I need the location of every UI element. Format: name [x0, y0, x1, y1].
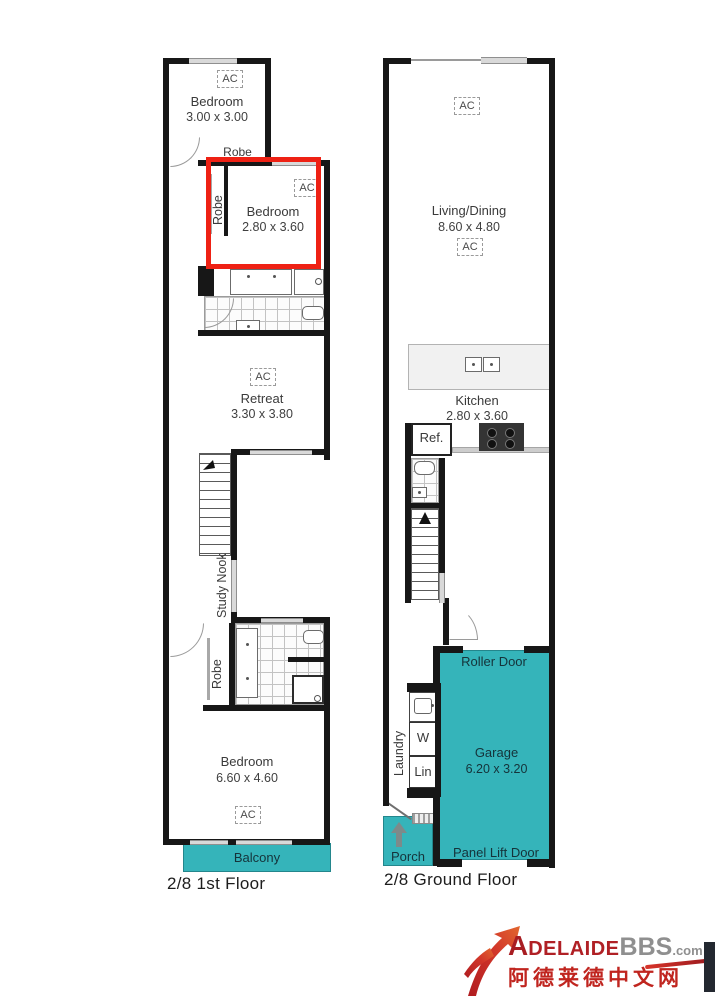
brand-initial: A: [508, 930, 528, 962]
porch-entry-arrow-icon: [390, 822, 408, 850]
brand-tld: .com: [672, 943, 702, 958]
room-dims-retreat: 3.30 x 3.80: [217, 407, 307, 421]
ac-unit: AC: [457, 238, 483, 256]
wall: [203, 705, 330, 711]
panel-lift-door-label: Panel Lift Door: [446, 845, 546, 860]
ground-floor-title: 2/8 Ground Floor: [384, 870, 517, 890]
wall: [437, 859, 462, 867]
tap-icon: [247, 275, 250, 278]
stair-direction-arrow-icon: [417, 510, 433, 528]
wall: [527, 859, 555, 867]
drain-icon: [490, 363, 493, 366]
laundry-trough: [409, 692, 437, 722]
room-label-living-dining: Living/Dining: [414, 204, 524, 219]
floorplan-canvas: AC Bedroom 3.00 x 3.00 Robe Robe AC Bedr…: [0, 0, 715, 1000]
cropped-edge-element: [704, 942, 715, 992]
window: [236, 840, 292, 845]
sink: [483, 357, 500, 372]
burner-icon: [505, 428, 515, 438]
wall: [288, 657, 330, 662]
wall: [383, 58, 389, 806]
drain-icon: [314, 695, 321, 702]
ac-unit: AC: [217, 70, 243, 88]
basin: [412, 487, 427, 498]
room-dims-bedroom-top: 3.00 x 3.00: [172, 110, 262, 124]
ac-unit: AC: [235, 806, 261, 824]
tap-icon: [246, 677, 249, 680]
drain-icon: [472, 363, 475, 366]
wall: [265, 58, 271, 165]
chinese-site-name: 阿德莱德中文网: [508, 962, 683, 992]
room-dims-bedroom-main: 6.60 x 4.60: [202, 771, 292, 785]
room-dims-living-dining: 8.60 x 4.80: [414, 220, 524, 234]
wall: [526, 58, 555, 64]
door-swing: [170, 137, 200, 167]
window: [231, 560, 237, 612]
room-dims-kitchen: 2.80 x 3.60: [427, 409, 527, 423]
wall: [324, 617, 330, 845]
garage-label: Garage: [449, 745, 544, 760]
laundry-label: Laundry: [392, 718, 406, 788]
window: [481, 57, 527, 64]
door-swing: [449, 606, 478, 640]
burner-icon: [505, 439, 515, 449]
tap-icon: [247, 325, 250, 328]
ac-unit: AC: [250, 368, 276, 386]
study-nook-label: Study Nook: [215, 552, 229, 620]
balcony-label: Balcony: [207, 850, 307, 865]
toilet: [303, 630, 324, 644]
burner-icon: [487, 428, 497, 438]
window: [190, 840, 228, 845]
tap-icon: [431, 704, 434, 707]
burner-icon: [487, 439, 497, 449]
room-label-bedroom-top: Bedroom: [172, 95, 262, 110]
wall: [439, 458, 445, 508]
shower: [292, 675, 324, 704]
wall: [229, 623, 235, 711]
sink: [465, 357, 482, 372]
vanity: [230, 269, 292, 295]
ac-unit: AC: [454, 97, 480, 115]
adelaidebbs-wordmark: ADELAIDEBBS.com: [508, 930, 703, 962]
wall: [198, 330, 330, 336]
first-floor-title: 2/8 1st Floor: [167, 874, 265, 894]
room-label-retreat: Retreat: [217, 392, 307, 407]
robe-label-vertical: Robe: [210, 645, 224, 703]
room-label-bedroom-main: Bedroom: [202, 755, 292, 770]
roller-door-label: Roller Door: [444, 654, 544, 669]
tap-icon: [246, 643, 249, 646]
door-swing: [170, 623, 204, 657]
toilet: [414, 461, 435, 475]
stair-direction-arrow-icon: [201, 458, 217, 474]
window: [250, 450, 312, 455]
garage-dims: 6.20 x 3.20: [449, 762, 544, 776]
wall: [411, 503, 439, 508]
washer-label: W: [409, 731, 437, 746]
vanity: [236, 628, 258, 698]
wall: [443, 598, 449, 645]
toilet: [302, 306, 324, 320]
wall: [549, 58, 555, 868]
wall: [198, 266, 214, 296]
linen-label: Lin: [409, 765, 437, 780]
tap-icon: [418, 491, 421, 494]
porch-label: Porch: [384, 849, 432, 864]
trough-basin: [414, 698, 432, 714]
brand-rest: DELAIDE: [528, 938, 619, 961]
wall: [163, 58, 169, 845]
cooktop: [479, 423, 524, 451]
brand-bbs: BBS: [620, 933, 673, 962]
wall: [383, 58, 411, 64]
wall: [433, 795, 440, 866]
highlight-rectangle: [206, 157, 321, 269]
wall: [324, 160, 330, 460]
wall: [405, 508, 411, 603]
tap-icon: [273, 275, 276, 278]
shower: [294, 269, 324, 295]
window: [189, 58, 237, 64]
room-label-kitchen: Kitchen: [427, 394, 527, 409]
window: [439, 573, 445, 603]
wall: [524, 646, 555, 653]
window: [261, 618, 303, 623]
drain-icon: [315, 278, 322, 285]
fridge-label: Ref.: [411, 431, 452, 446]
